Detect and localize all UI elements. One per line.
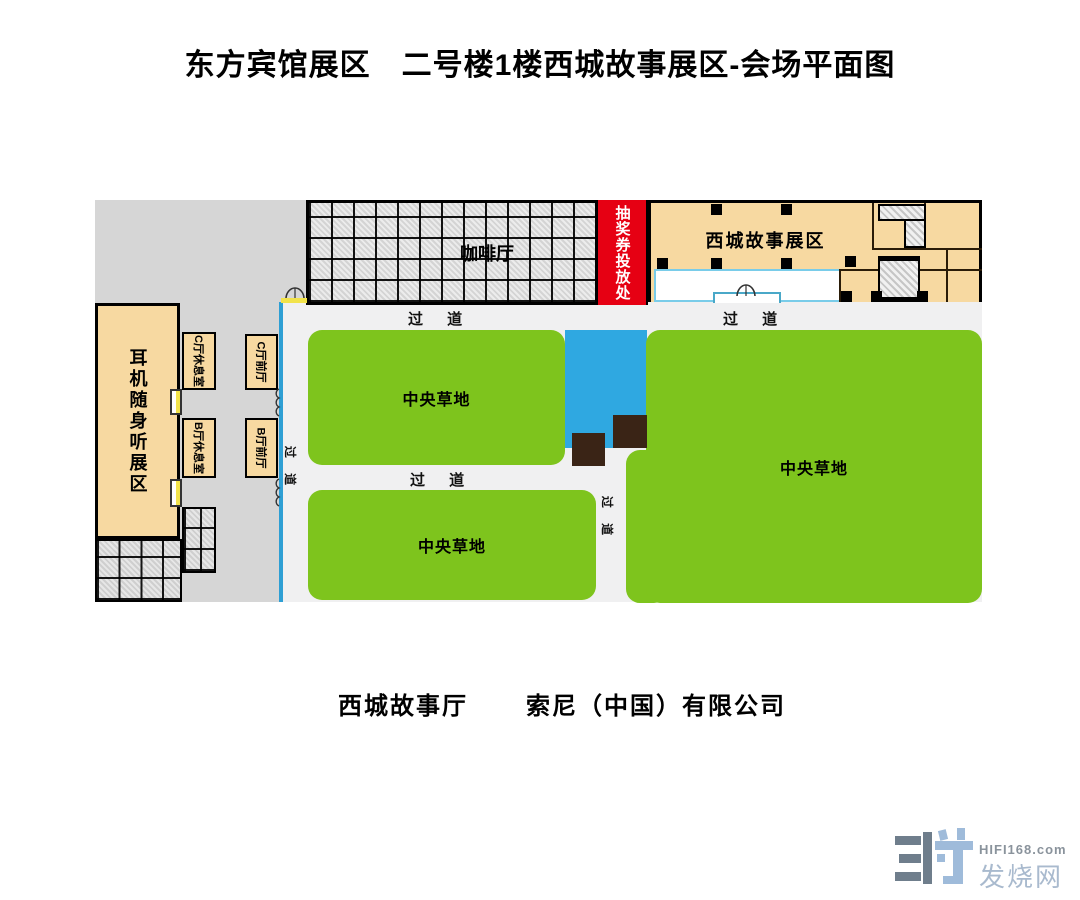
central-lawn-3: 中央草地 [646,330,982,603]
wall [946,248,948,302]
central-lawn-3-label: 中央草地 [780,455,848,479]
story-exhibit-area: 西城故事展区 [648,200,982,302]
caption-hall-name: 西城故事厅 [338,686,468,721]
lottery-booth-label: 抽奖券投放处 [615,205,630,301]
pillar [657,258,668,269]
headphone-exhibit-area: 耳机随身听展区 [95,303,180,539]
planter-box [613,415,647,448]
door-opening [170,479,182,507]
story-exhibit-label: 西城故事展区 [653,227,878,253]
aisle-label-vertical-left: 过 道 [283,448,299,488]
coffee-hall-area: 咖啡厅 [306,200,598,305]
foyer-c-room: C厅前厅 [245,334,278,390]
logo-site-text: HIFI168.com [979,842,1067,857]
floor-plan-page: 东方宾馆展区 二号楼1楼西城故事展区-会场平面图 咖啡厅 抽奖券投放处 西城故事… [0,0,1080,900]
central-lawn-1-label: 中央草地 [402,386,470,410]
pillar [781,204,792,215]
logo-mark-icon [893,828,977,890]
lounge-b-label: B厅休息室 [191,422,207,474]
folding-door-icon [270,478,281,508]
hatched-grid-extension [182,507,216,573]
headphone-exhibit-label: 耳机随身听展区 [125,348,151,495]
pillar [871,291,882,302]
pillar [845,256,856,267]
page-title: 东方宾馆展区 二号楼1楼西城故事展区-会场平面图 [0,40,1080,84]
caption-row: 西城故事厅 索尼（中国）有限公司 [338,686,786,721]
wall [872,248,982,250]
central-lawn-1: 中央草地 [308,330,565,465]
door-icon [735,283,757,297]
door-opening [170,389,182,415]
coffee-hall-label: 咖啡厅 [460,240,514,266]
hatched-grid-area [95,539,182,602]
foyer-c-label: C厅前厅 [254,342,270,383]
foyer-b-room: B厅前厅 [245,418,278,478]
planter-box [572,433,605,466]
logo-text-block: HIFI168.com 发烧网 [979,842,1067,894]
hatched-wall [878,256,920,302]
foyer-b-label: B厅前厅 [254,428,270,469]
pillar [711,204,722,215]
site-logo: HIFI168.com 发烧网 [893,826,1073,892]
pillar [711,258,722,269]
caption-company-name: 索尼（中国）有限公司 [526,686,786,721]
logo-name-text: 发烧网 [979,857,1067,894]
folding-door-icon [270,388,281,418]
lottery-booth-area: 抽奖券投放处 [598,200,648,305]
aisle-label-middle: 过 道 [410,469,474,490]
pillar [841,291,852,302]
pillar [781,258,792,269]
lounge-c-room: C厅休息室 [182,332,216,390]
lounge-c-label: C厅休息室 [191,335,207,387]
lounge-b-room: B厅休息室 [182,418,216,478]
hatched-wall [904,219,926,248]
aisle-label-top-left: 过 道 [408,308,472,329]
pillar [917,291,928,302]
aisle-label-vertical-right: 过 道 [600,498,616,538]
aisle-label-top-right: 过 道 [723,308,787,329]
wall [872,203,874,248]
central-lawn-2-label: 中央草地 [418,533,486,557]
door-icon [284,286,306,299]
central-lawn-2: 中央草地 [308,490,596,600]
